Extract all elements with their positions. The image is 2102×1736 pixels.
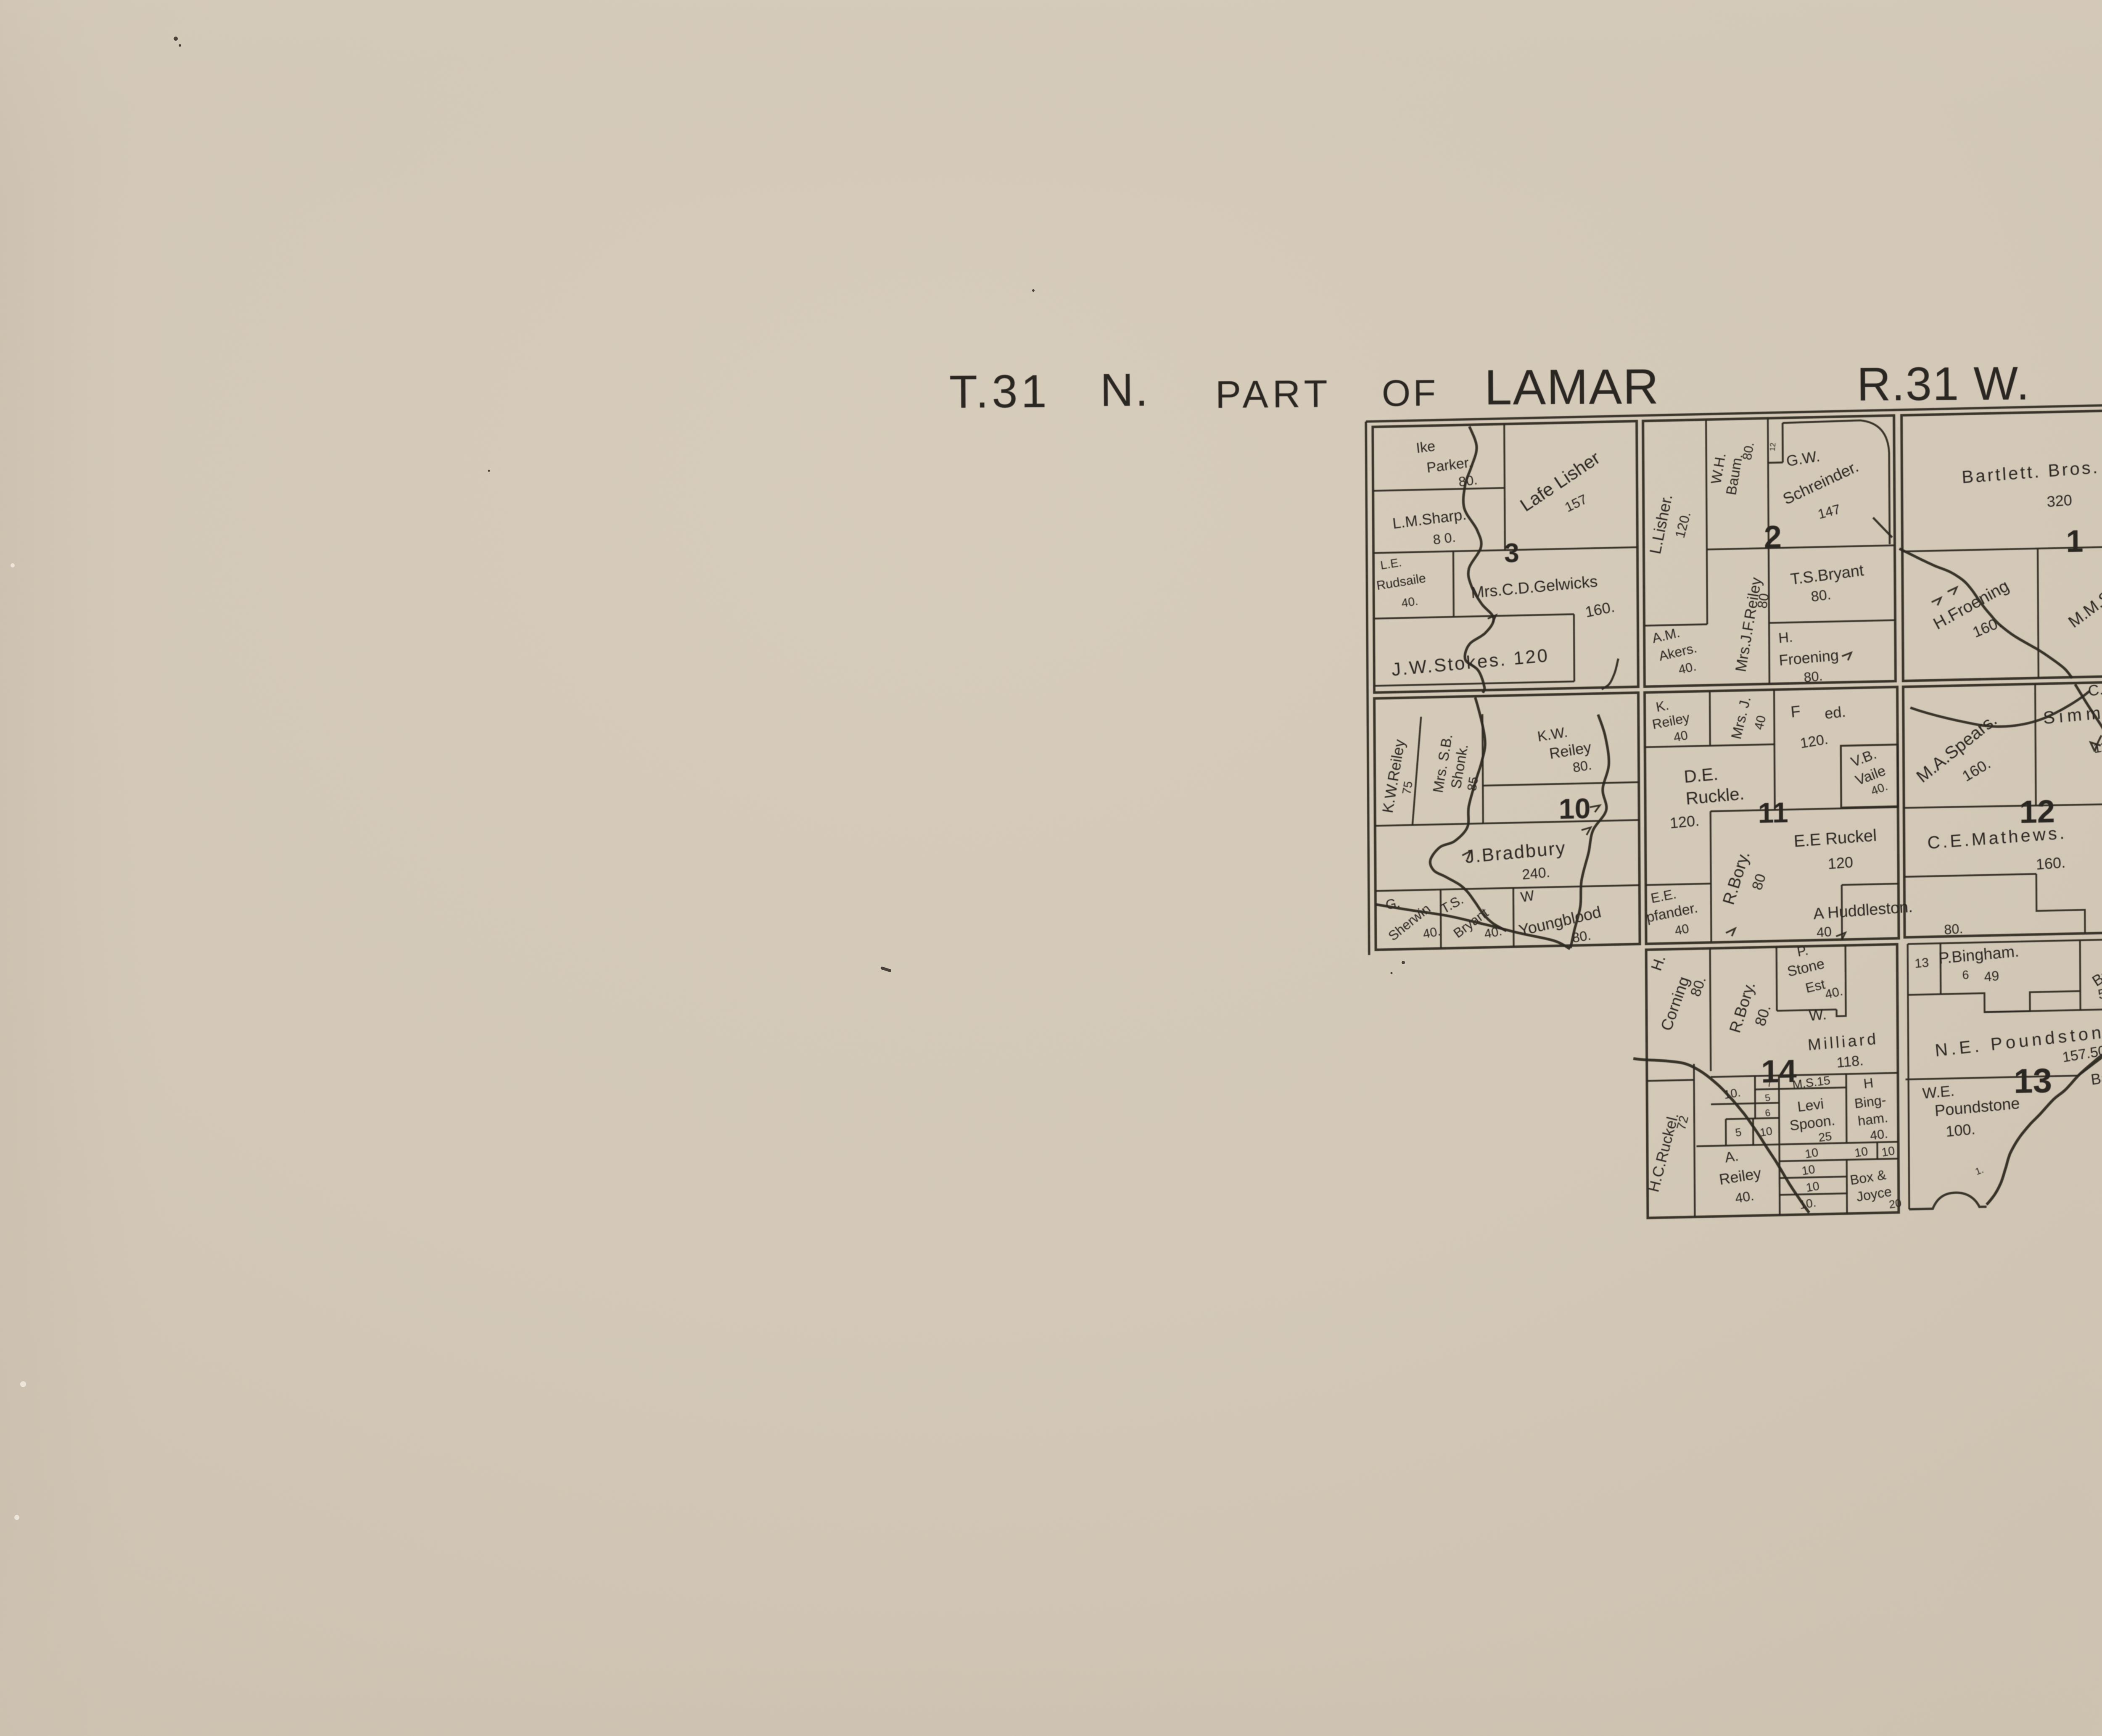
svg-text:10.: 10. [1798, 1196, 1817, 1212]
svg-text:A.: A. [1724, 1148, 1739, 1166]
svg-text:80: 80 [1754, 592, 1772, 609]
svg-text:320: 320 [2046, 491, 2073, 510]
svg-text:F: F [1790, 703, 1801, 721]
svg-text:PART: PART [1215, 372, 1332, 416]
svg-text:10: 10 [1801, 1163, 1816, 1178]
svg-text:Ike: Ike [1415, 438, 1436, 456]
svg-text:40.: 40. [1869, 1127, 1888, 1143]
svg-text:80.: 80. [1571, 928, 1592, 946]
svg-text:T.31: T.31 [949, 366, 1050, 418]
svg-text:25: 25 [1818, 1129, 1833, 1145]
svg-text:H: H [1863, 1075, 1874, 1092]
svg-text:80.: 80. [1810, 586, 1832, 605]
svg-text:10: 10 [1804, 1146, 1819, 1161]
svg-text:3: 3 [1504, 538, 1519, 568]
svg-text:2: 2 [1764, 519, 1782, 555]
svg-text:20: 20 [1888, 1196, 1902, 1211]
svg-text:OF: OF [1382, 372, 1439, 414]
svg-text:K.: K. [1655, 697, 1670, 715]
svg-text:80.: 80. [1740, 441, 1757, 461]
svg-text:W.: W. [1808, 1005, 1827, 1024]
svg-text:N.: N. [1100, 364, 1150, 416]
svg-text:40: 40 [1816, 924, 1832, 940]
svg-text:10: 10 [1559, 792, 1591, 825]
svg-text:40: 40 [1672, 728, 1689, 745]
svg-text:75: 75 [1400, 780, 1415, 795]
svg-text:6: 6 [1962, 968, 1969, 982]
svg-text:1: 1 [2066, 524, 2084, 559]
svg-text:160.: 160. [2036, 854, 2066, 873]
svg-text:10: 10 [1854, 1145, 1869, 1160]
svg-text:118.: 118. [1836, 1053, 1864, 1071]
svg-text:10.: 10. [1723, 1086, 1742, 1102]
svg-text:C.H.: C.H. [2087, 678, 2102, 699]
svg-text:120: 120 [1827, 853, 1854, 872]
svg-text:40.: 40. [1400, 594, 1419, 610]
svg-text:13: 13 [2014, 1061, 2052, 1100]
svg-text:100.: 100. [1945, 1120, 1976, 1140]
svg-text:D.E.: D.E. [1683, 764, 1719, 786]
svg-text:Levi: Levi [1796, 1096, 1825, 1115]
svg-text:8 0.: 8 0. [1432, 530, 1457, 548]
svg-text:80.: 80. [1803, 668, 1823, 685]
svg-text:80.: 80. [1458, 472, 1478, 489]
svg-text:40.: 40. [1734, 1188, 1755, 1206]
svg-text:10: 10 [1880, 1144, 1896, 1160]
svg-text:49: 49 [1983, 968, 2000, 984]
svg-text:85: 85 [1465, 776, 1481, 792]
svg-text:LAMAR: LAMAR [1484, 359, 1659, 416]
svg-text:G.: G. [1384, 895, 1401, 913]
svg-text:80.: 80. [1572, 757, 1593, 776]
svg-text:240.: 240. [1521, 864, 1550, 883]
svg-text:11: 11 [1758, 797, 1788, 829]
svg-text:120.: 120. [1669, 812, 1700, 831]
svg-text:10: 10 [1805, 1179, 1820, 1195]
svg-text:H.: H. [1778, 629, 1793, 646]
svg-text:40: 40 [1674, 921, 1690, 938]
svg-text:80.: 80. [1944, 921, 1963, 937]
svg-text:W: W [1520, 887, 1536, 905]
svg-text:10: 10 [1759, 1124, 1773, 1139]
svg-text:R.31 W.: R.31 W. [1856, 357, 2030, 411]
svg-text:12: 12 [1768, 443, 1777, 451]
svg-text:ed.: ed. [1824, 703, 1846, 722]
svg-text:W.E.: W.E. [1922, 1082, 1955, 1102]
svg-text:13: 13 [1914, 955, 1929, 971]
